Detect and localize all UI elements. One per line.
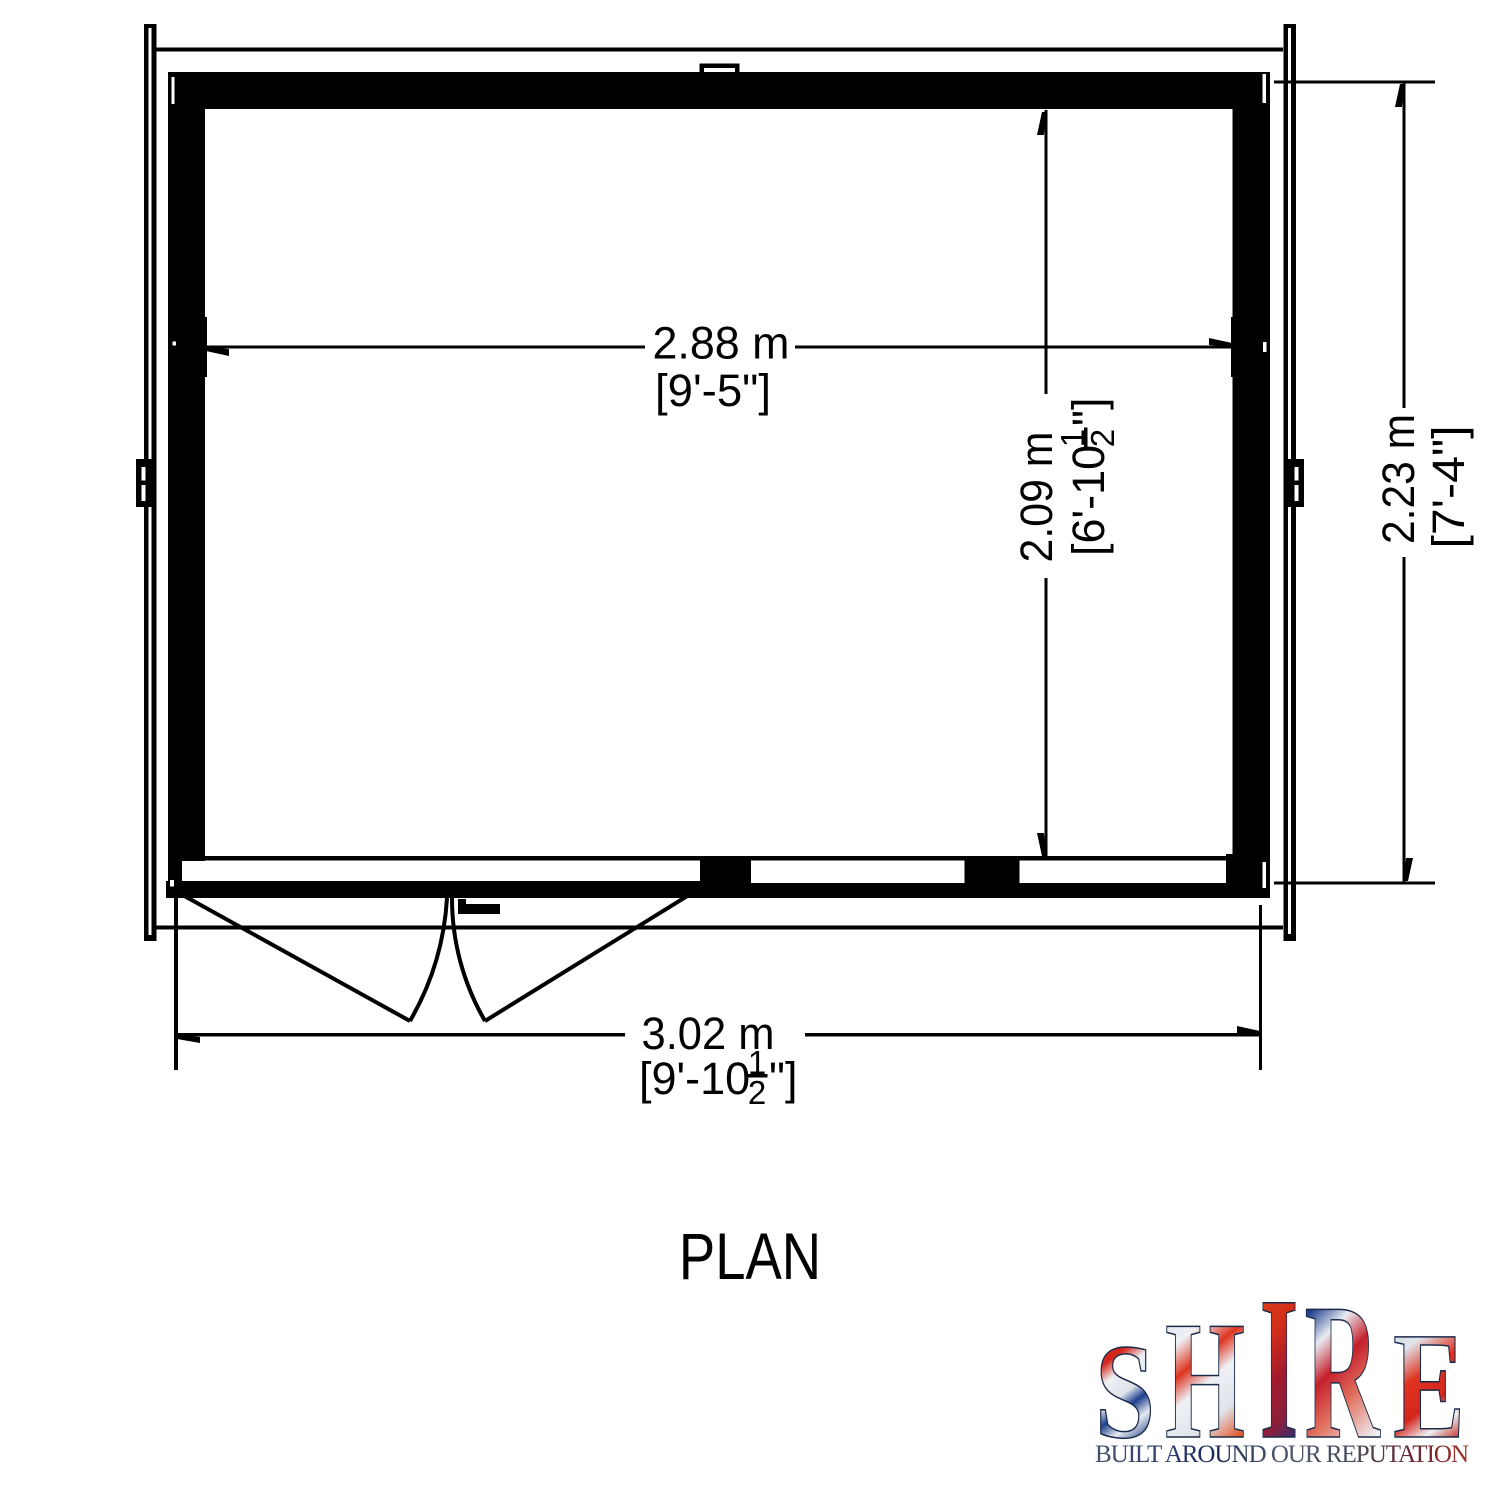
svg-text:PLAN: PLAN (679, 1219, 821, 1293)
svg-text:2.23 m: 2.23 m (1373, 414, 1424, 544)
svg-text:2: 2 (1084, 429, 1121, 447)
svg-text:2: 2 (748, 1074, 766, 1111)
svg-text:"]: "] (1063, 398, 1114, 426)
svg-text:2.09 m: 2.09 m (1011, 432, 1062, 563)
svg-text:2.88 m: 2.88 m (653, 318, 790, 369)
svg-text:[9'-5"]: [9'-5"] (655, 365, 771, 416)
svg-text:BUILT AROUND OUR REPUTATION: BUILT AROUND OUR REPUTATION (1095, 1441, 1469, 1468)
svg-text:[9'-10: [9'-10 (639, 1053, 750, 1104)
svg-text:[6'-10: [6'-10 (1063, 445, 1114, 556)
svg-text:[7'-4"]: [7'-4"] (1423, 426, 1474, 549)
svg-text:"]: "] (769, 1053, 797, 1104)
